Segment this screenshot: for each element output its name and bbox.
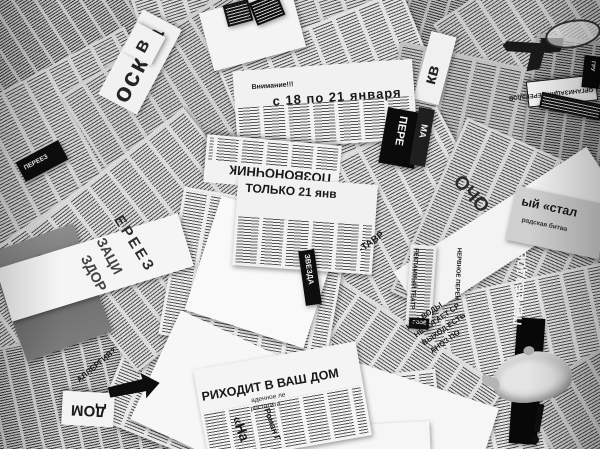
text-fragment-zvezda: ЗВЕЗДА — [303, 254, 315, 285]
text-fragment-tolko: ТОЛЬКО 21 янв — [245, 182, 337, 201]
newsprint-texture — [225, 1, 251, 24]
exclamation-mark-dot — [532, 436, 539, 443]
text-fragment-pere: ПЕРЕ — [392, 115, 409, 146]
text-fragment-v: в — [130, 36, 154, 57]
text-fragment-bitva: радская битва — [521, 218, 568, 234]
text-fragment-ma: МА — [417, 123, 429, 138]
newspaper-collage-photo: ЕРЕЕЗПЕРЕЕЗЗАЦИЗДОРосквавквВнимание!!!с … — [0, 0, 600, 449]
text-fragment-vnimanie: Внимание!!! — [251, 81, 293, 91]
text-fragment-stal: ый «стал — [520, 195, 578, 220]
text-fragment-dom: ДОМ — [71, 401, 107, 419]
text-fragment-gru: ГРУ — [588, 61, 595, 72]
text-fragment-pereez: ПЕРЕЕЗ — [23, 154, 49, 172]
text-fragment-kv: кв — [421, 64, 443, 87]
newspaper-scrap: ГРУ — [581, 55, 600, 89]
